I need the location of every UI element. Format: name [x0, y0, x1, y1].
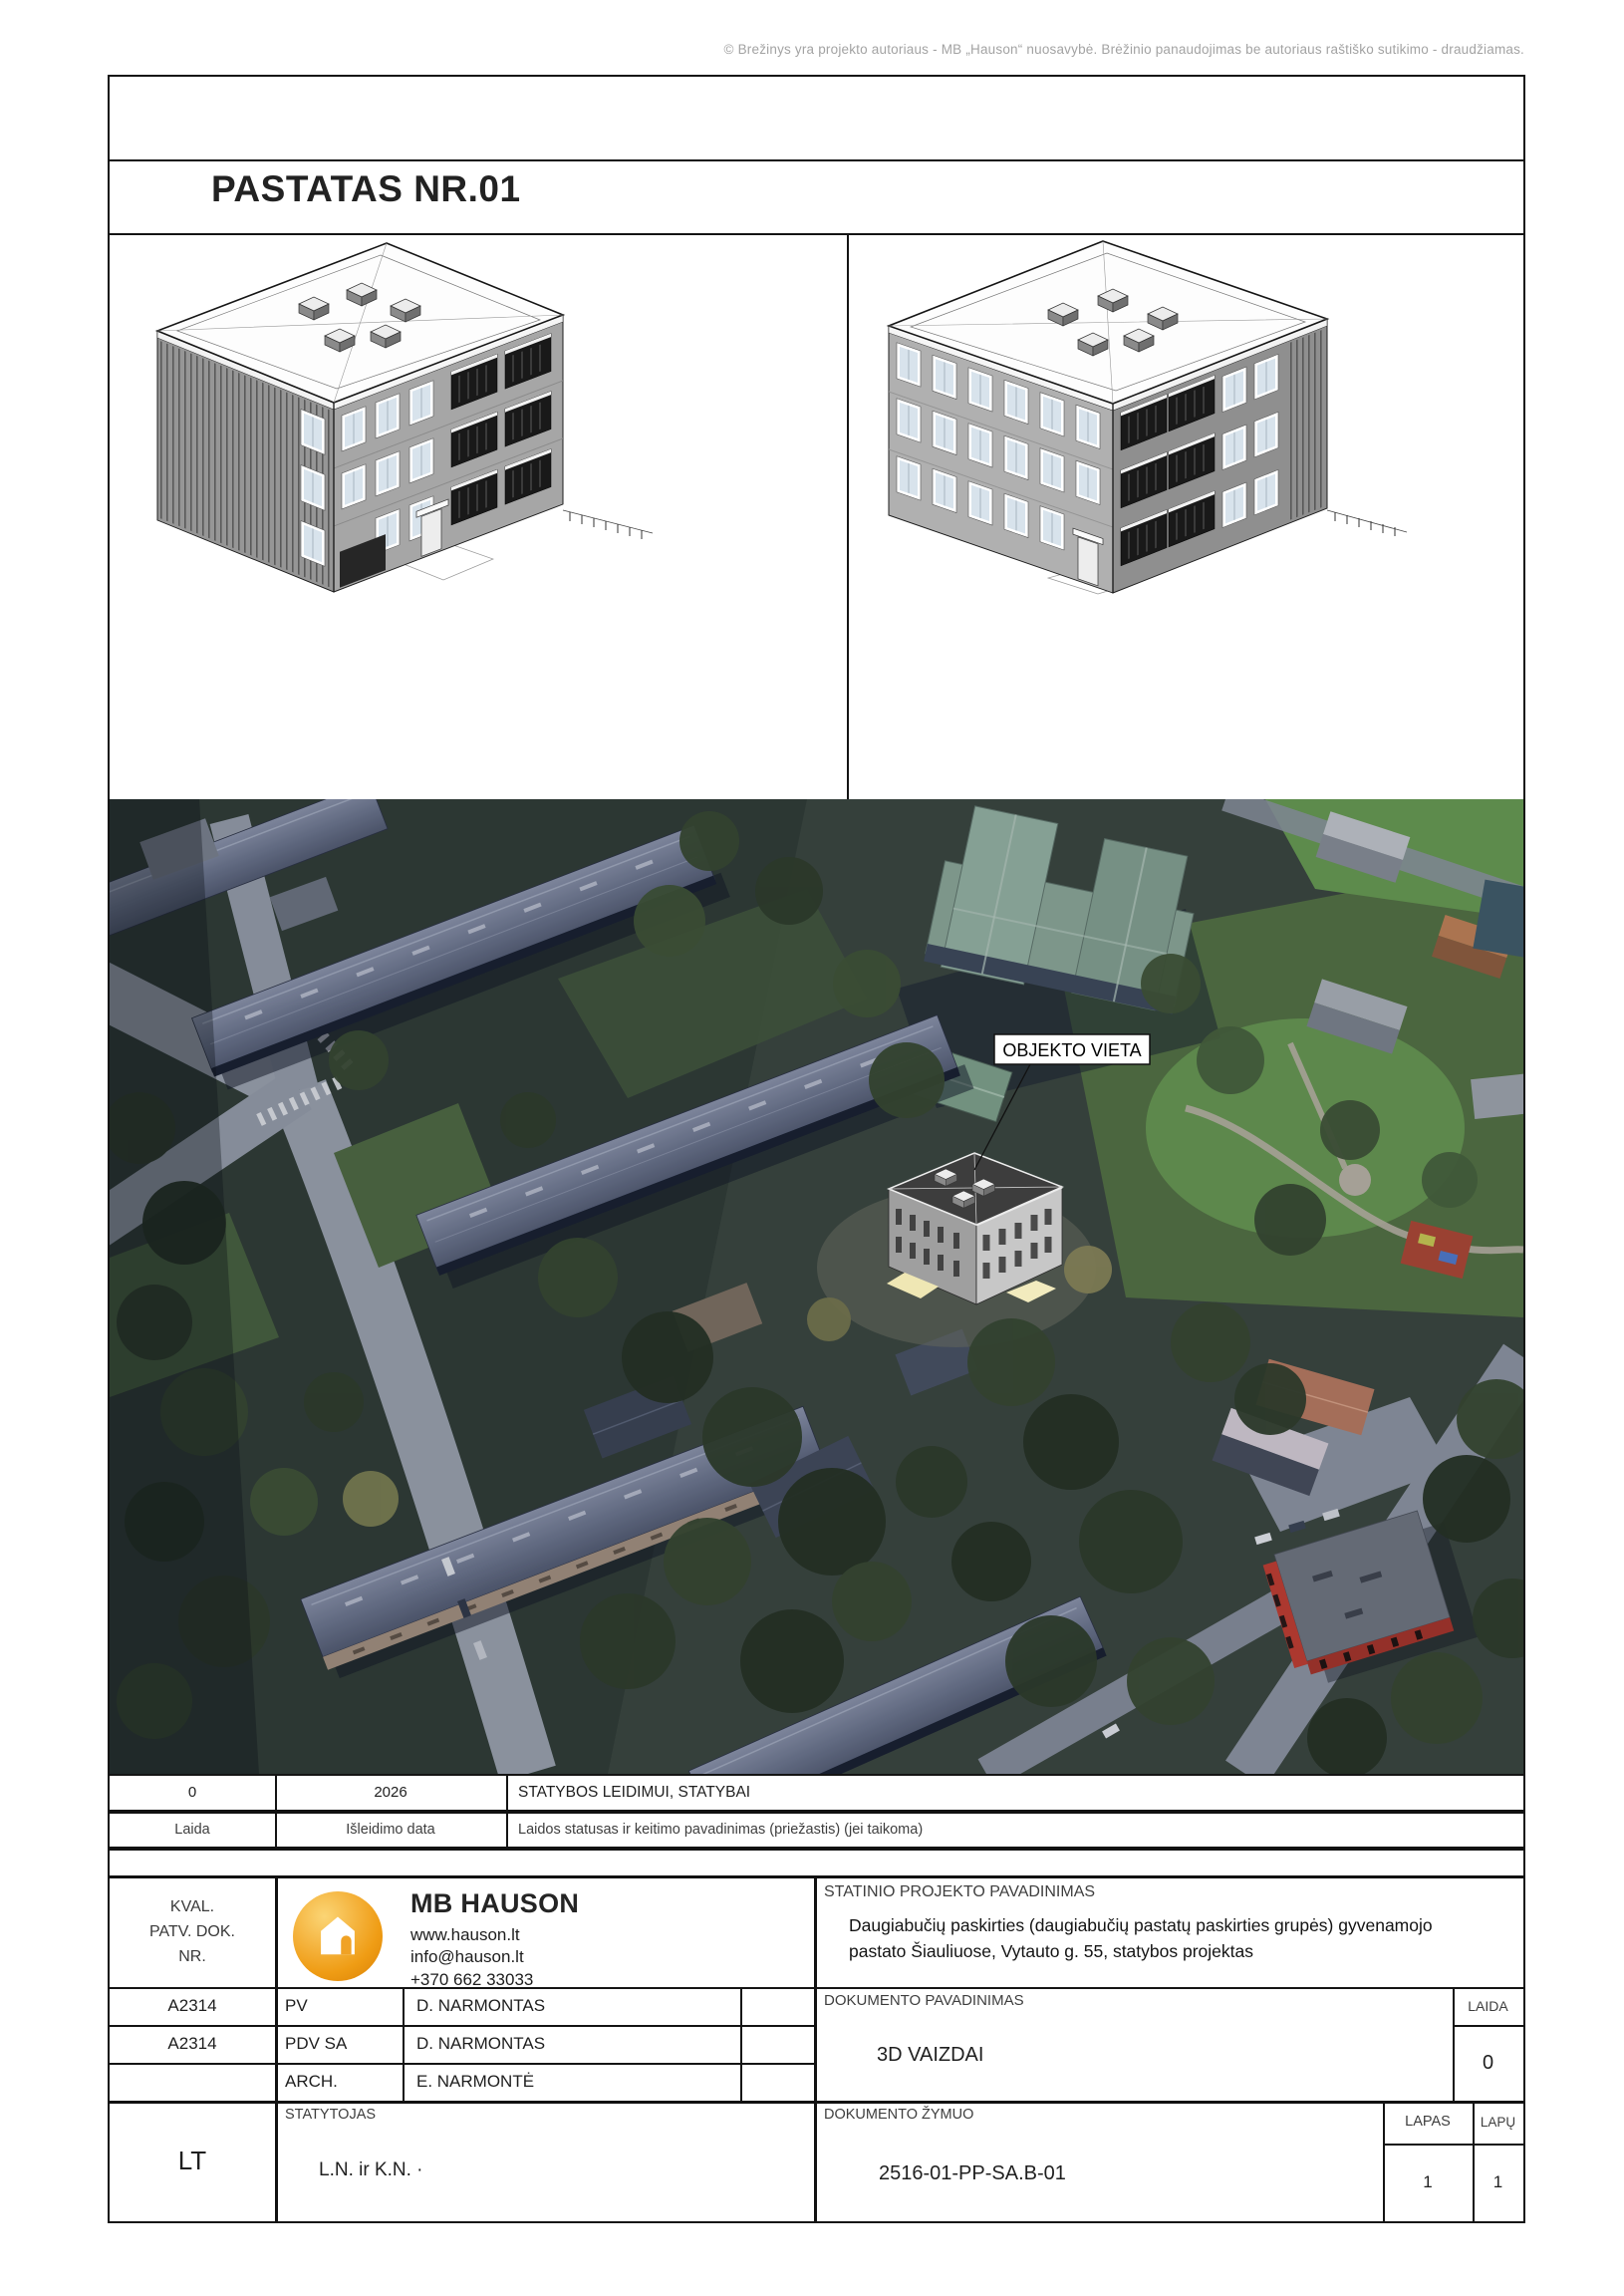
revision-status-label: Laidos statusas ir keitimo pavadinimas (…	[518, 1814, 923, 1847]
zymuo-value: 2516-01-PP-SA.B-01	[879, 2162, 1066, 2185]
lapas-label: LAPAS	[1383, 2101, 1473, 2144]
staff-role: ARCH.	[285, 2063, 395, 2101]
kval-patv-dok-cell: KVAL. PATV. DOK. NR.	[110, 1880, 275, 1985]
copyright-notice: © Brežinys yra projekto autoriaus - MB „…	[724, 42, 1525, 57]
render-panel-right	[849, 233, 1523, 799]
location-label: OBJEKTO VIETA	[994, 1034, 1150, 1064]
render-panel-left	[110, 233, 847, 799]
fence	[1335, 512, 1395, 536]
hauson-logo-house-icon	[312, 1910, 364, 1962]
staff-role: PV	[285, 1987, 395, 2025]
building-render-left	[110, 233, 847, 799]
hauson-logo	[293, 1891, 383, 1981]
revision-date-label: Išleidimo data	[275, 1814, 506, 1847]
language-code: LT	[110, 2101, 275, 2221]
revision-laida-value: 0	[110, 1776, 275, 1810]
document-name-value: 3D VAIZDAI	[877, 2044, 983, 2067]
fence	[570, 512, 642, 539]
company-block: MB HAUSON www.hauson.lt info@hauson.lt +…	[410, 1888, 579, 1991]
staff-name: D. NARMONTAS	[416, 2025, 735, 2063]
kval-line: KVAL.	[170, 1895, 214, 1920]
lapu-label: LAPŲ	[1473, 2101, 1523, 2144]
sheet-frame: PASTATAS NR.01	[108, 75, 1525, 2223]
lapas-value: 1	[1383, 2144, 1473, 2221]
company-website: www.hauson.lt	[410, 1924, 579, 1946]
entrance-door	[421, 509, 441, 557]
revision-laida-label: Laida	[110, 1814, 275, 1847]
page-title: PASTATAS NR.01	[211, 168, 521, 210]
laida-label: LAIDA	[1453, 1987, 1523, 2025]
laida-value: 0	[1453, 2025, 1523, 2101]
document-name-label: DOKUMENTO PAVADINIMAS	[824, 1992, 1024, 2009]
kval-line: NR.	[178, 1945, 206, 1970]
divider	[110, 159, 1523, 161]
project-name-value: Daugiabučių paskirties (daugiabučių past…	[849, 1912, 1491, 1965]
company-email: info@hauson.lt	[410, 1946, 579, 1968]
revision-date-value: 2026	[275, 1776, 506, 1810]
statytojas-label: STATYTOJAS	[285, 2107, 376, 2123]
kval-line: PATV. DOK.	[149, 1920, 235, 1945]
project-name-label: STATINIO PROJEKTO PAVADINIMAS	[824, 1883, 1095, 1901]
staff-code: A2314	[110, 2025, 275, 2063]
zymuo-label: DOKUMENTO ŽYMUO	[824, 2107, 973, 2123]
staff-role: PDV SA	[285, 2025, 395, 2063]
building-render-right	[849, 233, 1523, 799]
entrance-door	[1078, 537, 1098, 586]
revision-status-value: STATYBOS LEIDIMUI, STATYBAI	[518, 1776, 750, 1810]
staff-name: D. NARMONTAS	[416, 1987, 735, 2025]
aerial-photo-container: OBJEKTO VIETA	[110, 799, 1523, 1774]
statytojas-value: L.N. ir K.N. ·	[319, 2159, 423, 2181]
location-label-text: OBJEKTO VIETA	[1002, 1040, 1141, 1060]
lapu-value: 1	[1473, 2144, 1523, 2221]
aerial-photo: OBJEKTO VIETA	[110, 799, 1523, 1774]
company-name: MB HAUSON	[410, 1888, 579, 1919]
staff-name: E. NARMONTĖ	[416, 2063, 735, 2101]
staff-code: A2314	[110, 1987, 275, 2025]
